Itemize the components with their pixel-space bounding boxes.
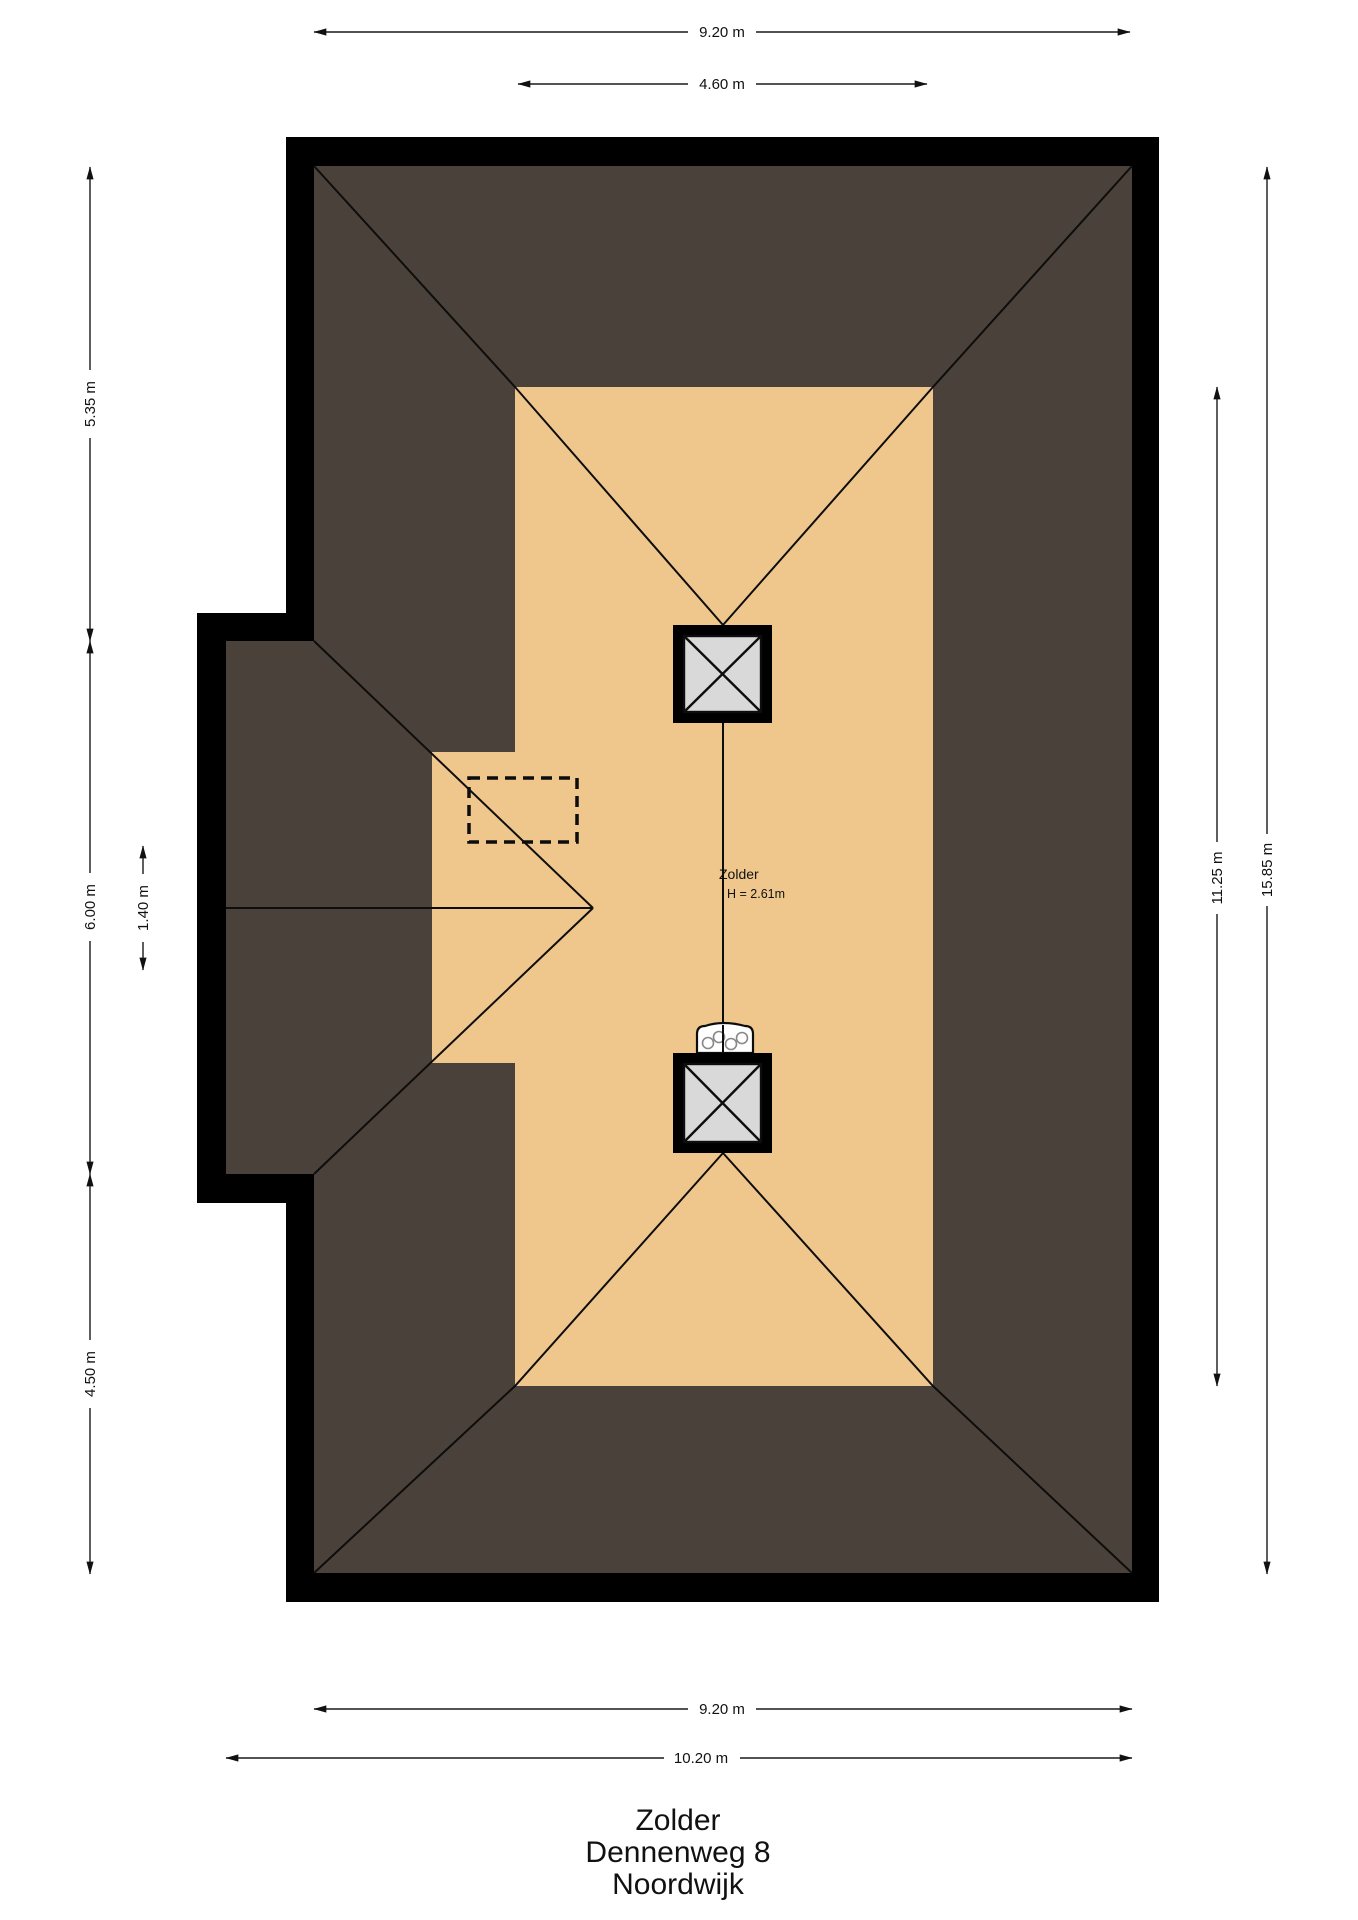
dimension-left-bottom: 4.50 m — [80, 1174, 100, 1574]
skylight-shaft-top — [673, 625, 772, 723]
dimension-label: 9.20 m — [699, 24, 745, 41]
room-name-label: Zolder — [719, 866, 759, 882]
dimension-bottom-outer: 10.20 m — [226, 1748, 1132, 1768]
dimension-top-inner: 4.60 m — [518, 74, 927, 94]
dimension-right-outer: 15.85 m — [1257, 167, 1277, 1574]
dimension-label: 11.25 m — [1209, 851, 1226, 904]
title-street: Dennenweg 8 — [585, 1836, 770, 1869]
attic-floorplan: Zolder H = 2.61m 9.20 m 4.60 m 5.35 m 6.… — [0, 0, 1358, 1920]
dimension-right-inner: 11.25 m — [1207, 387, 1227, 1386]
dimension-label: 15.85 m — [1259, 843, 1276, 897]
dimension-label: 6.00 m — [82, 884, 99, 930]
dimension-label: 5.35 m — [82, 381, 99, 427]
dimension-top-outer: 9.20 m — [314, 22, 1130, 42]
dimension-left-mid: 6.00 m — [80, 641, 100, 1174]
title-city: Noordwijk — [612, 1868, 745, 1901]
dimension-bottom-inner: 9.20 m — [314, 1699, 1132, 1719]
dimension-label: 4.60 m — [699, 76, 745, 93]
dimension-label: 4.50 m — [82, 1351, 99, 1397]
skylight-shaft-bottom — [673, 1053, 772, 1153]
room-height-label: H = 2.61m — [727, 887, 785, 901]
title-block: Zolder Dennenweg 8 Noordwijk — [585, 1804, 770, 1901]
floorplan-page: Zolder H = 2.61m 9.20 m 4.60 m 5.35 m 6.… — [0, 0, 1358, 1920]
dimension-label: 10.20 m — [674, 1750, 728, 1767]
dimension-left-small: 1.40 m — [133, 846, 153, 970]
title-room: Zolder — [635, 1804, 720, 1837]
dimension-label: 9.20 m — [699, 1701, 745, 1718]
dimension-label: 1.40 m — [135, 885, 152, 931]
chimney-icon — [697, 1023, 753, 1053]
dimension-left-top: 5.35 m — [80, 167, 100, 641]
